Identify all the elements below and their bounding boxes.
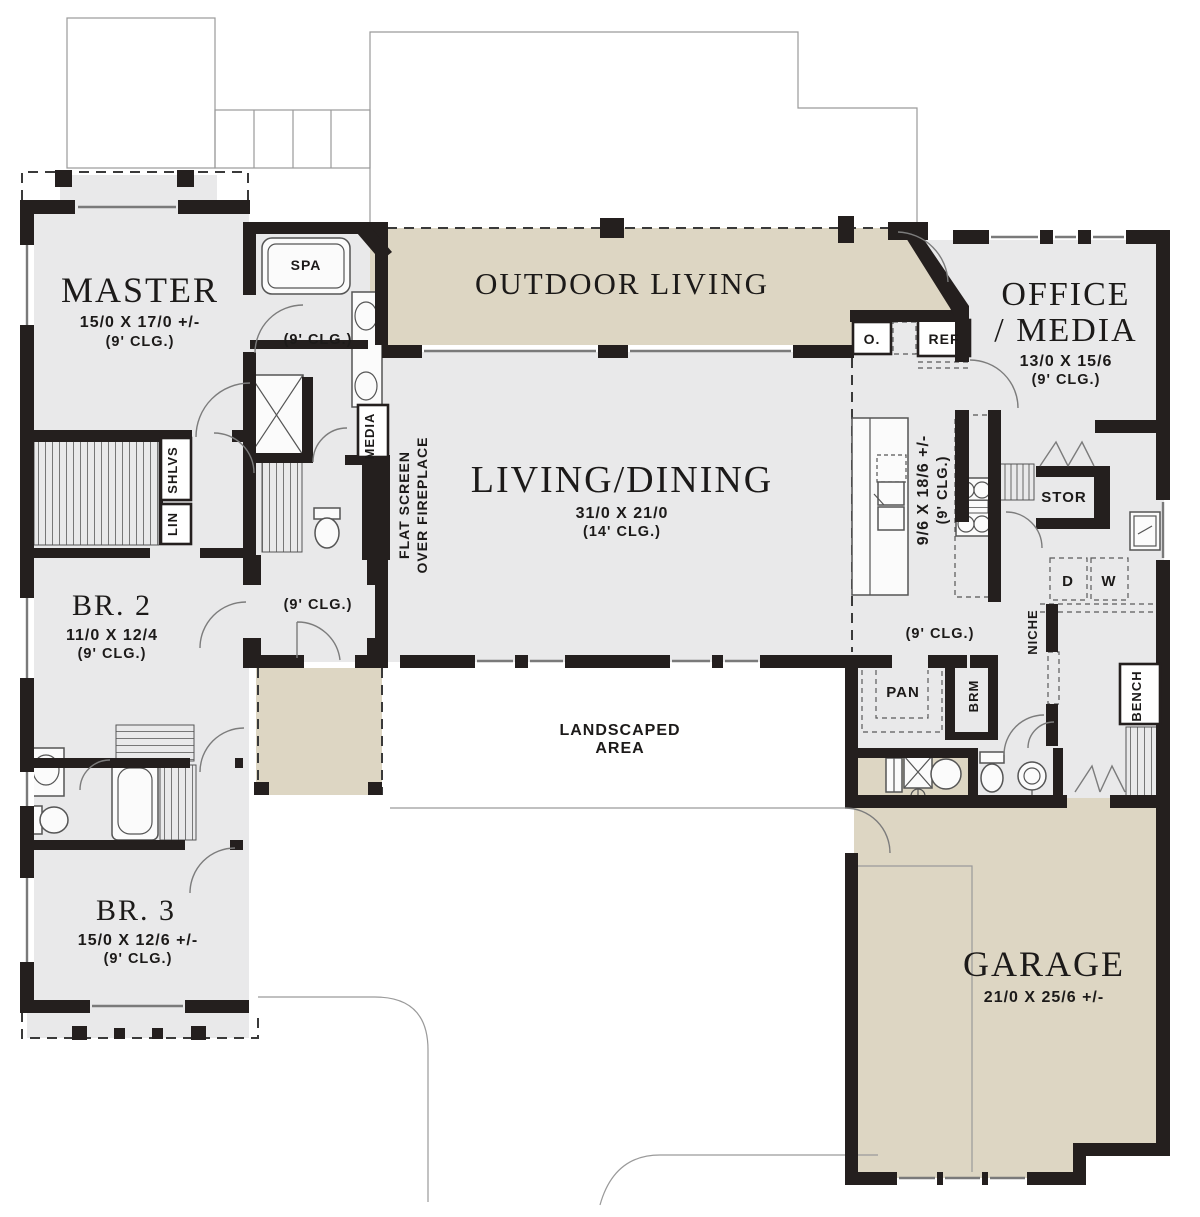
entry-porch-floor <box>256 668 382 795</box>
master-ceiling: (9' CLG.) <box>106 334 175 350</box>
br3-linen-closet <box>160 765 196 840</box>
brm-label: BRM <box>966 680 981 713</box>
niche-label: NICHE <box>1025 609 1040 654</box>
landscaped-label-line1: LANDSCAPED <box>559 722 680 739</box>
floor-plan: MASTER 15/0 X 17/0 +/- (9' CLG.) SPA (9'… <box>0 0 1200 1217</box>
garage-dims: 21/0 X 25/6 +/- <box>984 989 1104 1006</box>
living-dining-label: LIVING/DINING <box>471 459 773 501</box>
dryer-label: D <box>1062 573 1074 590</box>
toilet-icon <box>30 806 68 834</box>
office-ceiling: (9' CLG.) <box>1032 372 1101 388</box>
porch-post <box>838 216 854 243</box>
br3-label: BR. 3 <box>96 894 176 927</box>
br3-dims: 15/0 X 12/6 +/- <box>78 932 198 949</box>
bathtub-icon <box>112 762 158 840</box>
toilet-icon <box>314 508 340 548</box>
master-room-label: MASTER <box>61 270 219 310</box>
washer-label: W <box>1101 573 1116 590</box>
kitchen-dims: 9/6 X 18/6 +/- <box>915 435 932 546</box>
media-label: MEDIA <box>362 413 377 460</box>
master-dims: 15/0 X 17/0 +/- <box>80 314 200 331</box>
living-dining-ceiling: (14' CLG.) <box>583 524 661 540</box>
fridge-label: REF <box>929 331 960 347</box>
br2-ceiling: (9' CLG.) <box>78 646 147 662</box>
stairs <box>1000 464 1034 500</box>
fireplace-label-line1: FLAT SCREEN <box>396 451 412 559</box>
landscaped-label-line2: AREA <box>595 740 644 757</box>
mud-hall-ceiling: (9' CLG.) <box>906 626 975 642</box>
lin-label: LIN <box>165 512 180 536</box>
br2-label: BR. 2 <box>72 589 152 622</box>
bench-label: BENCH <box>1129 670 1144 721</box>
office-label-line2: / MEDIA <box>994 312 1137 349</box>
garage-floor <box>854 798 1164 1178</box>
living-dining-dims: 31/0 X 21/0 <box>576 505 669 522</box>
fireplace-label-line2: OVER FIREPLACE <box>414 437 430 574</box>
office-label-line1: OFFICE <box>1001 276 1130 313</box>
outdoor-living-label: OUTDOOR LIVING <box>475 266 769 301</box>
office-dims: 13/0 X 15/6 <box>1020 353 1113 370</box>
porch-post <box>55 170 72 187</box>
spa-label: SPA <box>291 257 322 273</box>
br2-closet <box>34 440 159 545</box>
master-hall-ceiling: (9' CLG.) <box>284 332 353 348</box>
porch-post <box>177 170 194 187</box>
pan-label: PAN <box>886 684 920 701</box>
bath3-shelf-closet <box>116 725 194 761</box>
garage-label: GARAGE <box>963 944 1125 984</box>
porch-post <box>600 218 624 238</box>
shlvs-label: SHLVS <box>165 446 180 493</box>
fireplace <box>362 455 390 560</box>
kitchen-ceiling: (9' CLG.) <box>935 456 951 525</box>
oven-label: O. <box>864 331 881 347</box>
round-sink-icon <box>931 759 961 789</box>
utility-sink-icon <box>1130 512 1160 550</box>
entry-ceiling: (9' CLG.) <box>284 597 353 613</box>
br2-dims: 11/0 X 12/4 <box>66 627 158 644</box>
floor-plan-drawing: MASTER 15/0 X 17/0 +/- (9' CLG.) SPA (9'… <box>0 0 1200 1217</box>
master-closet <box>262 462 302 552</box>
br3-ceiling: (9' CLG.) <box>104 951 173 967</box>
stor-label: STOR <box>1041 489 1086 506</box>
toilet-icon <box>980 752 1004 792</box>
